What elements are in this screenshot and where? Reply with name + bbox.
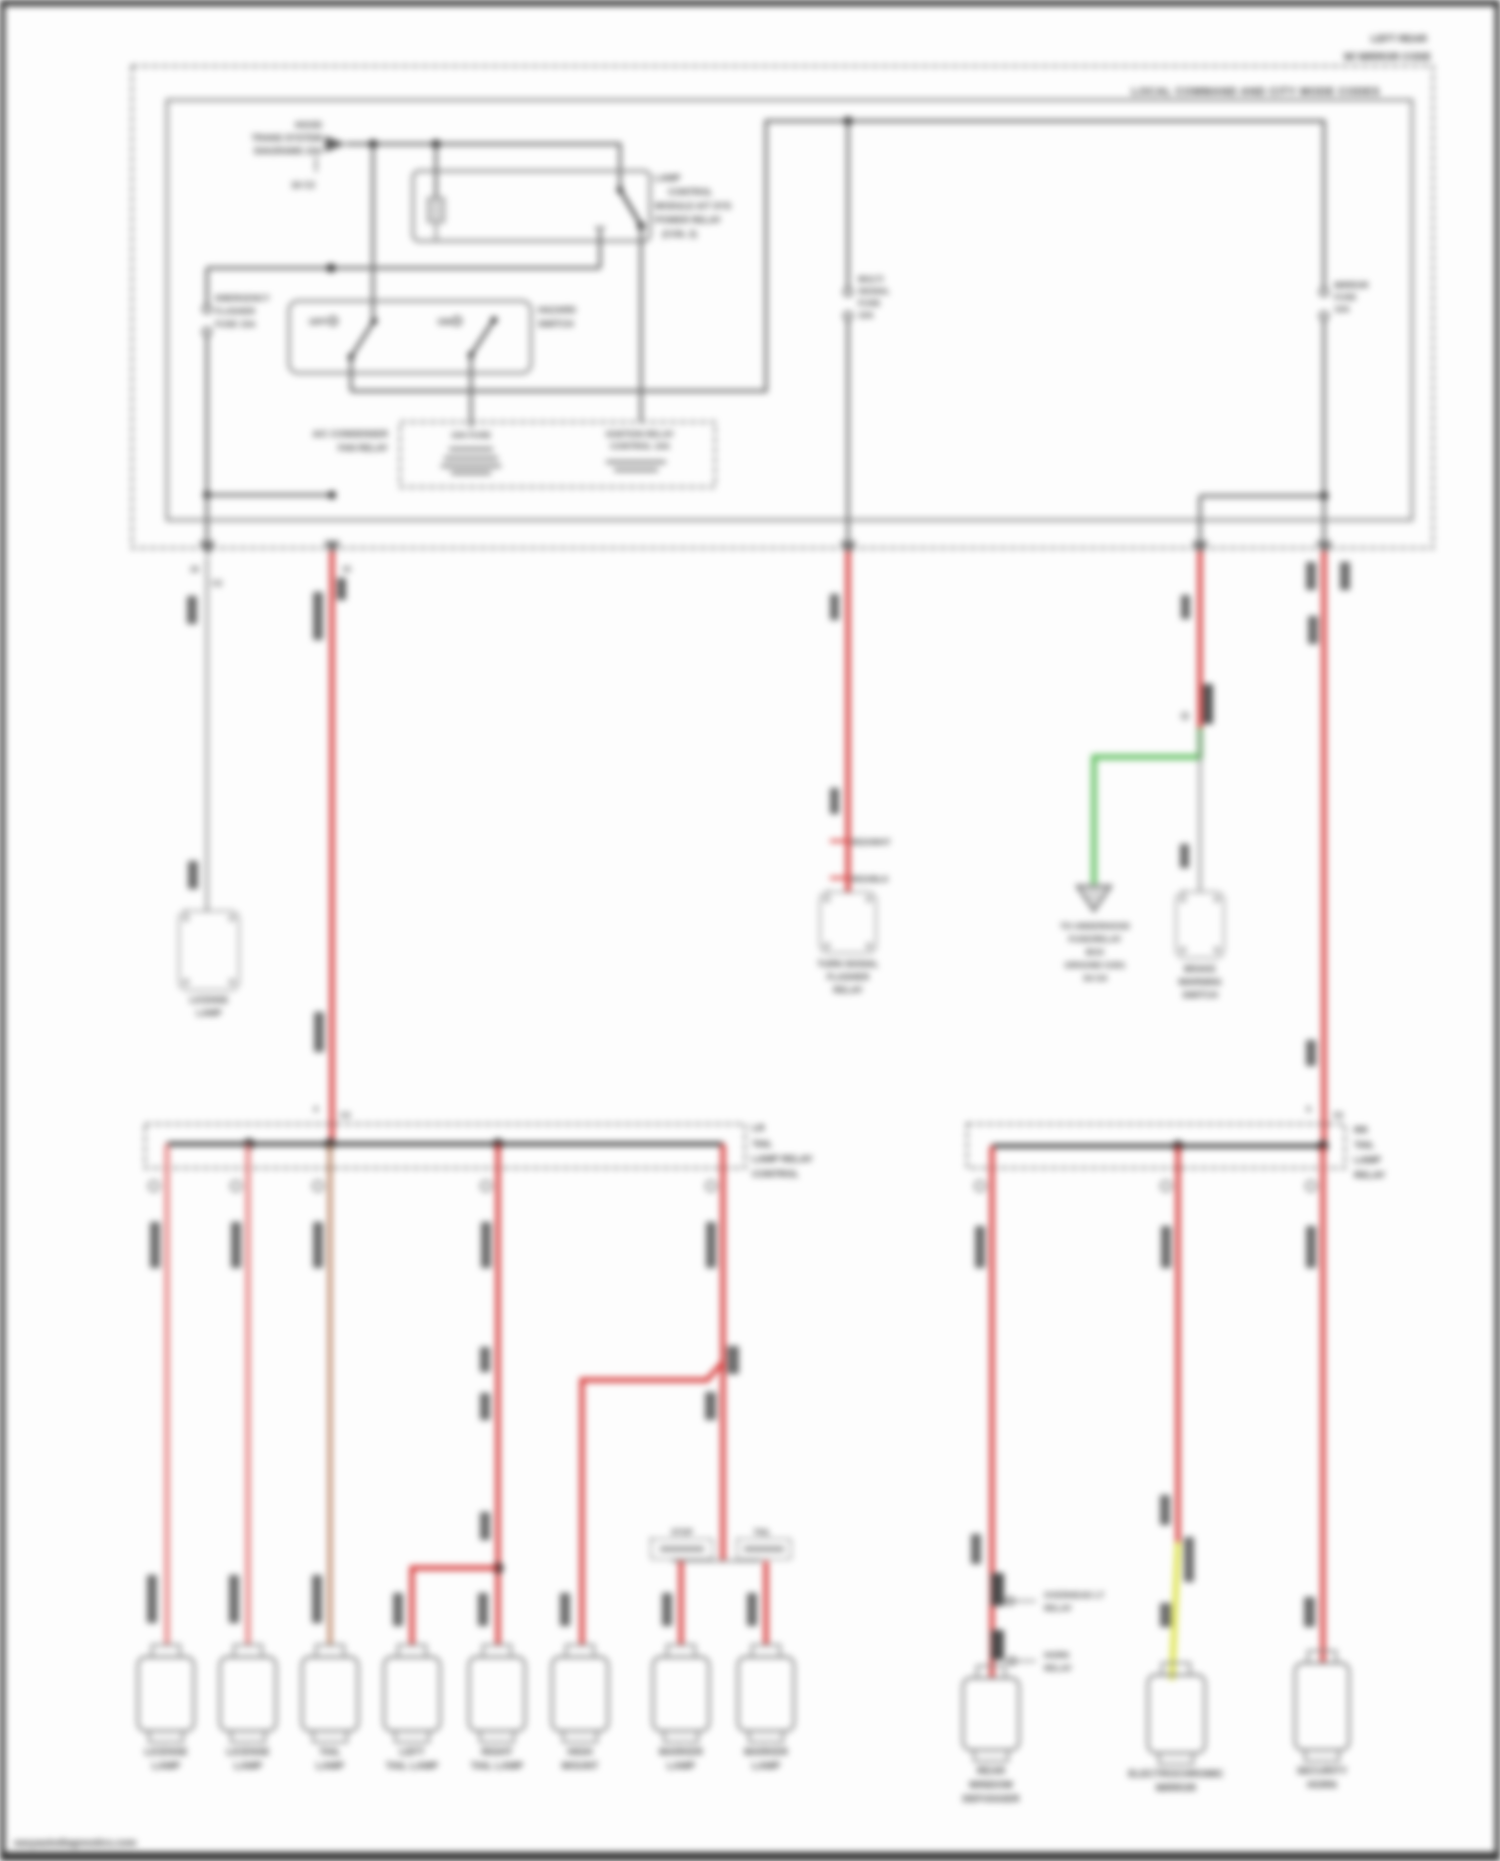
svg-text:C2: C2 — [212, 579, 223, 588]
svg-text:ON: ON — [438, 317, 452, 327]
svg-text:TAIL: TAIL — [753, 1528, 770, 1537]
svg-text:RELAY: RELAY — [1044, 1663, 1072, 1673]
svg-text:A/C CONDENSER: A/C CONDENSER — [312, 429, 388, 439]
svg-text:RELAY: RELAY — [1354, 1170, 1386, 1181]
svg-text:RELAY: RELAY — [833, 985, 863, 995]
svg-text:MODULE A/T SYS: MODULE A/T SYS — [655, 201, 731, 211]
svg-text:DEFOGGER: DEFOGGER — [962, 1794, 1020, 1805]
svg-text:10A FUSE: 10A FUSE — [451, 430, 492, 440]
svg-text:CONTROL: CONTROL — [752, 1169, 799, 1180]
svg-text:GROUND G301: GROUND G301 — [1065, 960, 1126, 970]
svg-text:LAMP: LAMP — [152, 1761, 181, 1772]
svg-text:LICENSE: LICENSE — [226, 1747, 270, 1758]
svg-text:LEFT: LEFT — [400, 1747, 425, 1758]
svg-text:LEFT REAR: LEFT REAR — [1371, 34, 1428, 45]
svg-text:LAMP: LAMP — [196, 1008, 222, 1018]
svg-text:TRANS SYSTEM: TRANS SYSTEM — [251, 133, 322, 143]
svg-text:HIGH: HIGH — [568, 1747, 593, 1758]
svg-text:16: 16 — [190, 565, 199, 574]
svg-text:RIGHT: RIGHT — [481, 1747, 512, 1758]
svg-text:OFF: OFF — [309, 317, 327, 327]
svg-text:MARKER: MARKER — [744, 1747, 789, 1758]
svg-text:TAIL LAMP: TAIL LAMP — [386, 1761, 439, 1772]
svg-text:HORN: HORN — [1044, 1650, 1069, 1660]
svg-text:RED/BLK: RED/BLK — [851, 874, 890, 884]
svg-text:RR: RR — [1354, 1125, 1368, 1136]
svg-text:TAIL: TAIL — [319, 1747, 340, 1758]
svg-text:RELAY: RELAY — [1044, 1603, 1072, 1613]
svg-text:REAR: REAR — [977, 1766, 1006, 1777]
svg-text:CONTROL: CONTROL — [668, 187, 713, 197]
svg-text:TO UNDERHOOD: TO UNDERHOOD — [1060, 921, 1130, 931]
svg-text:CONTROL 10A: CONTROL 10A — [610, 441, 670, 451]
svg-text:RED/WHT: RED/WHT — [851, 837, 891, 847]
svg-text:SWITCH: SWITCH — [538, 319, 574, 329]
svg-text:TAIL: TAIL — [752, 1139, 773, 1150]
svg-text:FLASHER: FLASHER — [827, 972, 870, 982]
svg-text:IGNITION RELAY: IGNITION RELAY — [606, 429, 674, 439]
svg-text:LICENSE: LICENSE — [189, 995, 228, 1005]
svg-text:HOOD: HOOD — [295, 120, 323, 130]
svg-text:MULTI: MULTI — [858, 274, 883, 284]
svg-text:BOX: BOX — [1086, 947, 1105, 957]
svg-text:LAMP: LAMP — [667, 1761, 696, 1772]
svg-text:POWER RELAY: POWER RELAY — [655, 215, 721, 225]
svg-text:FUSE: FUSE — [1334, 292, 1357, 302]
svg-text:MOUNT: MOUNT — [562, 1761, 599, 1772]
svg-text:10A: 10A — [858, 310, 874, 320]
svg-text:LAMP: LAMP — [316, 1761, 345, 1772]
svg-text:FLASHER: FLASHER — [215, 306, 255, 316]
svg-text:SWITCH: SWITCH — [1182, 990, 1218, 1000]
svg-text:easyautodiagnostics.com: easyautodiagnostics.com — [14, 1838, 136, 1849]
svg-text:BRAKE: BRAKE — [1184, 964, 1216, 974]
svg-text:LAMP: LAMP — [752, 1761, 781, 1772]
svg-text:16 C2: 16 C2 — [291, 180, 315, 190]
svg-text:OVERHEAD LT: OVERHEAD LT — [1044, 1590, 1105, 1600]
svg-text:C4: C4 — [340, 1111, 351, 1120]
svg-text:MIRROR: MIRROR — [1334, 280, 1368, 290]
svg-text:LICENSE: LICENSE — [144, 1747, 188, 1758]
svg-text:TURN SIGNAL: TURN SIGNAL — [817, 959, 879, 969]
svg-text:FAN RELAY: FAN RELAY — [338, 443, 388, 453]
svg-text:LAMP: LAMP — [234, 1761, 263, 1772]
svg-text:15: 15 — [342, 565, 351, 574]
svg-text:LAMP: LAMP — [655, 173, 681, 183]
svg-text:(COIL 2): (COIL 2) — [662, 229, 697, 239]
svg-text:DIAGRAMS 10A: DIAGRAMS 10A — [254, 146, 323, 156]
svg-text:S4 G4: S4 G4 — [1083, 973, 1107, 983]
svg-text:W/ MIRROR CODE: W/ MIRROR CODE — [1344, 52, 1432, 63]
svg-text:C6: C6 — [1333, 1111, 1344, 1120]
svg-text:SIGNAL: SIGNAL — [858, 286, 890, 296]
svg-text:MARKER: MARKER — [659, 1747, 704, 1758]
svg-text:HAZARD: HAZARD — [538, 305, 576, 315]
svg-text:MIRROR: MIRROR — [1156, 1783, 1197, 1794]
svg-text:FUSE: FUSE — [858, 298, 881, 308]
svg-text:SECURITY: SECURITY — [1297, 1766, 1348, 1777]
svg-text:TAIL: TAIL — [1354, 1140, 1375, 1151]
svg-text:6: 6 — [1307, 1105, 1312, 1114]
svg-text:STOP: STOP — [671, 1528, 693, 1537]
svg-text:LR: LR — [752, 1123, 765, 1134]
svg-text:10A: 10A — [1334, 304, 1350, 314]
svg-text:FUSE 15A: FUSE 15A — [215, 319, 256, 329]
svg-text:LOCAL COMMAND AND CITY MODE CO: LOCAL COMMAND AND CITY MODE CODES — [1131, 86, 1380, 98]
svg-text:WARNING: WARNING — [1178, 977, 1222, 987]
svg-text:TAIL LAMP: TAIL LAMP — [471, 1761, 524, 1772]
svg-text:WINDOW: WINDOW — [969, 1780, 1013, 1791]
svg-text:LAMP RELAY: LAMP RELAY — [752, 1154, 813, 1165]
svg-text:4: 4 — [314, 1105, 319, 1114]
svg-text:FUSE/RELAY: FUSE/RELAY — [1068, 934, 1121, 944]
svg-text:HORN: HORN — [1307, 1780, 1336, 1791]
svg-text:ELECTROCHROMIC: ELECTROCHROMIC — [1128, 1769, 1224, 1780]
svg-text:EMERGENCY: EMERGENCY — [215, 293, 270, 303]
svg-text:LAMP: LAMP — [1354, 1155, 1382, 1166]
